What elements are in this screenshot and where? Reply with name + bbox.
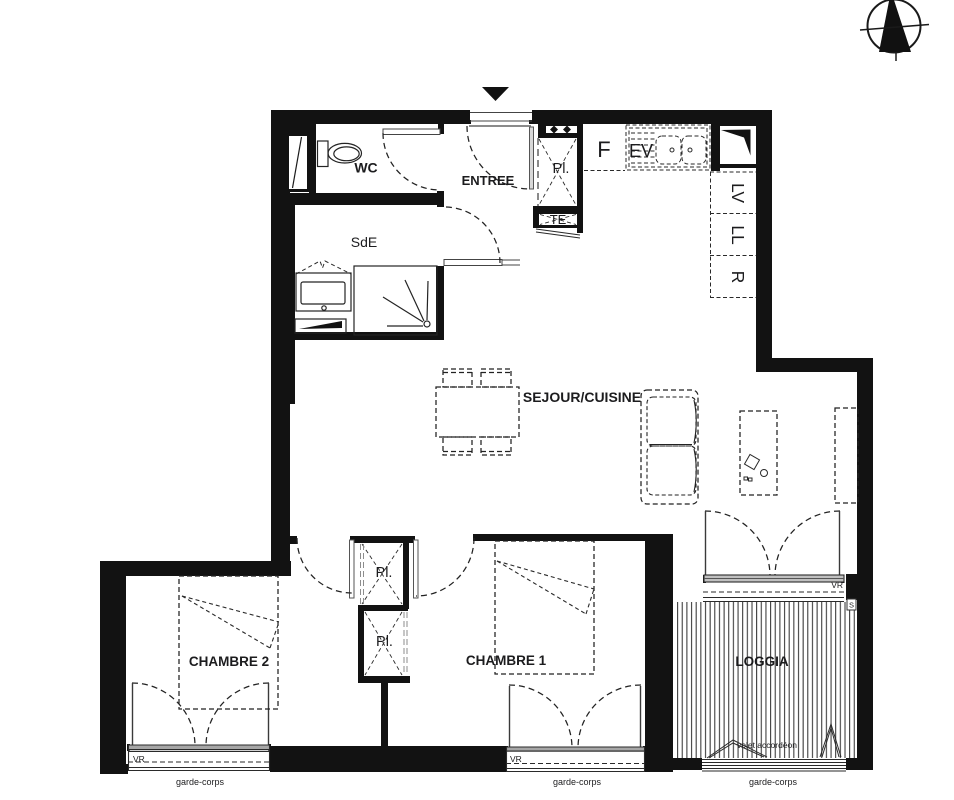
svg-text:R: R: [728, 271, 748, 284]
svg-text:LV: LV: [728, 183, 748, 203]
svg-text:garde-corps: garde-corps: [553, 777, 602, 787]
svg-text:ENTREE: ENTREE: [462, 173, 515, 188]
svg-text:VR: VR: [133, 754, 145, 764]
svg-text:garde-corps: garde-corps: [176, 777, 225, 787]
svg-text:VR: VR: [831, 580, 843, 590]
svg-text:volet accordéon: volet accordéon: [737, 740, 797, 750]
svg-text:F: F: [597, 137, 610, 162]
svg-text:Pl.: Pl.: [553, 161, 570, 177]
svg-text:CHAMBRE 1: CHAMBRE 1: [466, 653, 547, 668]
svg-text:Pl.: Pl.: [376, 634, 393, 650]
svg-text:LOGGIA: LOGGIA: [735, 654, 788, 669]
svg-text:WC: WC: [354, 160, 377, 176]
svg-text:SEJOUR/CUISINE: SEJOUR/CUISINE: [523, 389, 641, 405]
svg-text:Pl.: Pl.: [376, 565, 393, 581]
svg-text:CHAMBRE 2: CHAMBRE 2: [189, 654, 269, 669]
svg-text:VR: VR: [510, 754, 522, 764]
svg-text:EV: EV: [629, 141, 653, 161]
svg-text:LL: LL: [728, 225, 748, 245]
svg-text:S: S: [849, 601, 854, 610]
svg-text:SdE: SdE: [351, 234, 377, 250]
svg-text:TE: TE: [550, 212, 567, 227]
svg-text:garde-corps: garde-corps: [749, 777, 798, 787]
